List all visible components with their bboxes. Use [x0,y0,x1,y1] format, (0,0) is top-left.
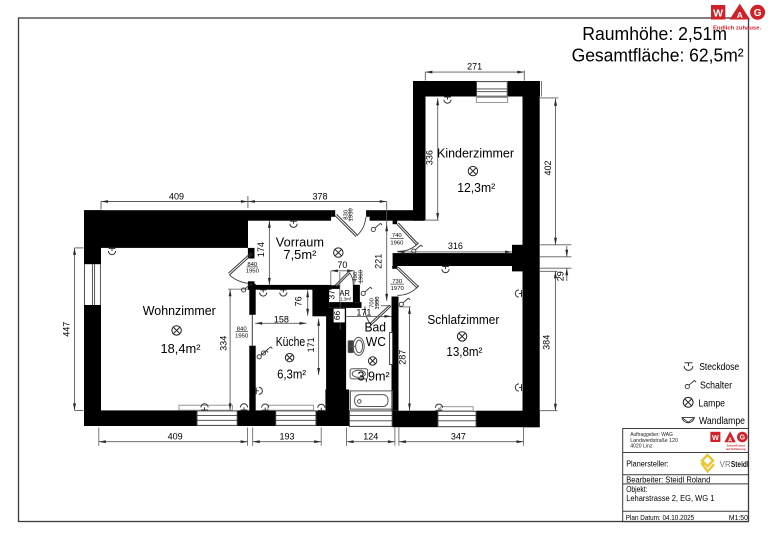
svg-text:Lampe: Lampe [699,398,726,409]
svg-text:287: 287 [398,350,408,365]
svg-text:378: 378 [312,191,327,201]
svg-text:37: 37 [326,290,336,300]
svg-text:Raumhöhe: 2,51m: Raumhöhe: 2,51m [582,23,727,44]
svg-text:271: 271 [467,61,482,71]
svg-text:Wandlampe: Wandlampe [699,416,745,427]
svg-text:1950: 1950 [246,269,260,275]
svg-text:158: 158 [274,314,289,324]
svg-text:70: 70 [337,260,347,270]
svg-text:1990: 1990 [375,296,381,310]
svg-text:316: 316 [448,241,463,251]
svg-text:193: 193 [279,431,294,441]
svg-text:auf Erfahrung: auf Erfahrung [726,447,746,451]
svg-text:66: 66 [332,311,342,321]
svg-text:W: W [713,7,723,19]
svg-text:171: 171 [356,307,371,317]
svg-text:WC: WC [366,334,387,349]
svg-text:Schlafzimmer: Schlafzimmer [427,312,499,327]
svg-text:6,3m²: 6,3m² [277,366,307,381]
svg-text:7,5m²: 7,5m² [283,247,317,262]
svg-text:W: W [712,433,719,442]
svg-text:174: 174 [256,242,266,257]
svg-text:3,9m²: 3,9m² [358,369,391,384]
svg-text:1970: 1970 [391,286,405,292]
svg-text:Wohnzimmer: Wohnzimmer [143,303,217,318]
svg-text:1950: 1950 [235,334,249,340]
svg-text:Steckdose: Steckdose [699,362,739,373]
svg-text:M1:50: M1:50 [729,513,748,522]
svg-text:1,3m²: 1,3m² [340,297,352,302]
svg-text:Bad: Bad [365,319,387,334]
svg-text:29: 29 [556,271,566,281]
svg-text:409: 409 [169,191,184,201]
svg-text:A: A [737,10,743,20]
svg-text:1960: 1960 [359,269,365,283]
svg-text:336: 336 [425,150,435,165]
svg-text:76: 76 [294,296,304,306]
svg-text:13,8m²: 13,8m² [446,344,483,359]
svg-text:221: 221 [374,254,384,269]
svg-text:Steidl: Steidl [731,460,749,469]
svg-text:Schalter: Schalter [700,380,733,391]
svg-text:402: 402 [543,160,553,175]
svg-text:347: 347 [451,431,466,441]
svg-text:G: G [754,8,762,19]
svg-text:334: 334 [218,336,228,351]
svg-text:Gesamtfläche: 62,5m²: Gesamtfläche: 62,5m² [572,44,744,65]
svg-text:409: 409 [168,431,183,441]
svg-text:Leharstrasse 2, EG, WG 1: Leharstrasse 2, EG, WG 1 [626,494,714,503]
svg-text:4020 Linz: 4020 Linz [630,444,653,450]
svg-text:12,3m²: 12,3m² [457,180,496,195]
svg-text:447: 447 [62,322,72,337]
svg-text:Küche: Küche [276,334,306,349]
svg-text:Kinderzimmer: Kinderzimmer [437,146,515,161]
svg-text:Plan Datum: 04.10.2025: Plan Datum: 04.10.2025 [626,513,694,522]
svg-text:171: 171 [306,337,316,352]
svg-text:Planersteller:: Planersteller: [626,460,669,469]
svg-text:G: G [740,435,746,442]
svg-text:Bearbeiter: Steidl Roland: Bearbeiter: Steidl Roland [626,476,710,485]
svg-text:124: 124 [363,431,378,441]
svg-text:18,4m²: 18,4m² [161,341,202,356]
svg-text:Objekt:: Objekt: [626,485,647,494]
svg-text:VR: VR [720,460,731,469]
svg-text:1960: 1960 [390,240,404,246]
svg-text:384: 384 [542,335,552,350]
